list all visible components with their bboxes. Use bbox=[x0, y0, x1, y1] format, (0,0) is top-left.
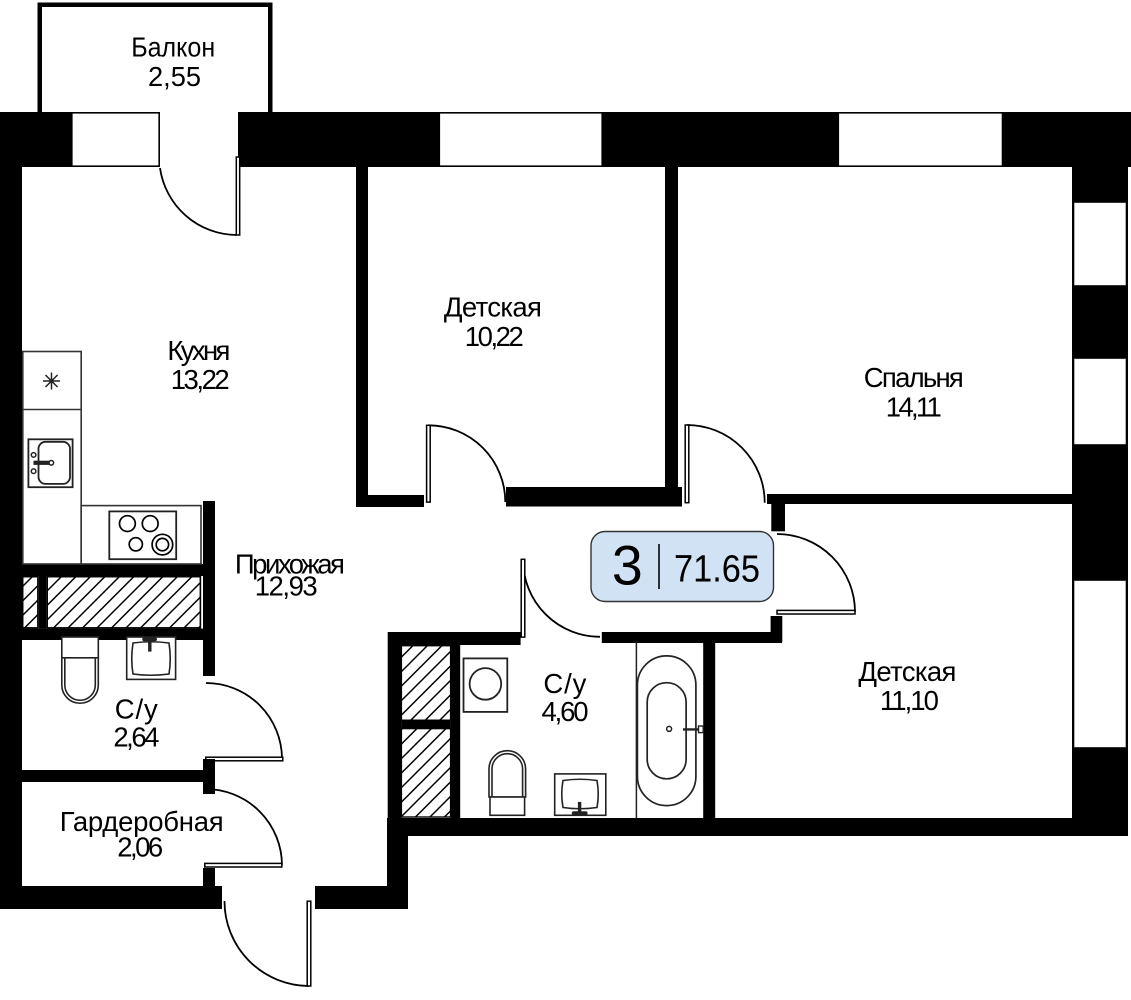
svg-text:Детская: Детская bbox=[858, 656, 956, 687]
svg-text:2,55: 2,55 bbox=[148, 61, 201, 92]
svg-text:2,06: 2,06 bbox=[117, 831, 163, 862]
svg-text:С/у: С/у bbox=[115, 693, 158, 724]
svg-text:71.65: 71.65 bbox=[674, 548, 760, 590]
svg-text:13,22: 13,22 bbox=[171, 364, 230, 395]
svg-text:11,10: 11,10 bbox=[880, 685, 939, 716]
svg-text:Детская: Детская bbox=[444, 292, 542, 323]
svg-text:Кухня: Кухня bbox=[167, 335, 230, 366]
svg-text:12,93: 12,93 bbox=[255, 570, 318, 601]
svg-text:С/у: С/у bbox=[543, 668, 586, 699]
svg-text:4,60: 4,60 bbox=[542, 696, 589, 727]
svg-text:14,11: 14,11 bbox=[886, 391, 942, 422]
svg-text:3: 3 bbox=[612, 535, 643, 597]
svg-text:Спальня: Спальня bbox=[864, 362, 964, 393]
svg-text:10,22: 10,22 bbox=[465, 321, 524, 352]
svg-text:2,64: 2,64 bbox=[113, 722, 159, 753]
svg-text:Балкон: Балкон bbox=[131, 32, 215, 63]
